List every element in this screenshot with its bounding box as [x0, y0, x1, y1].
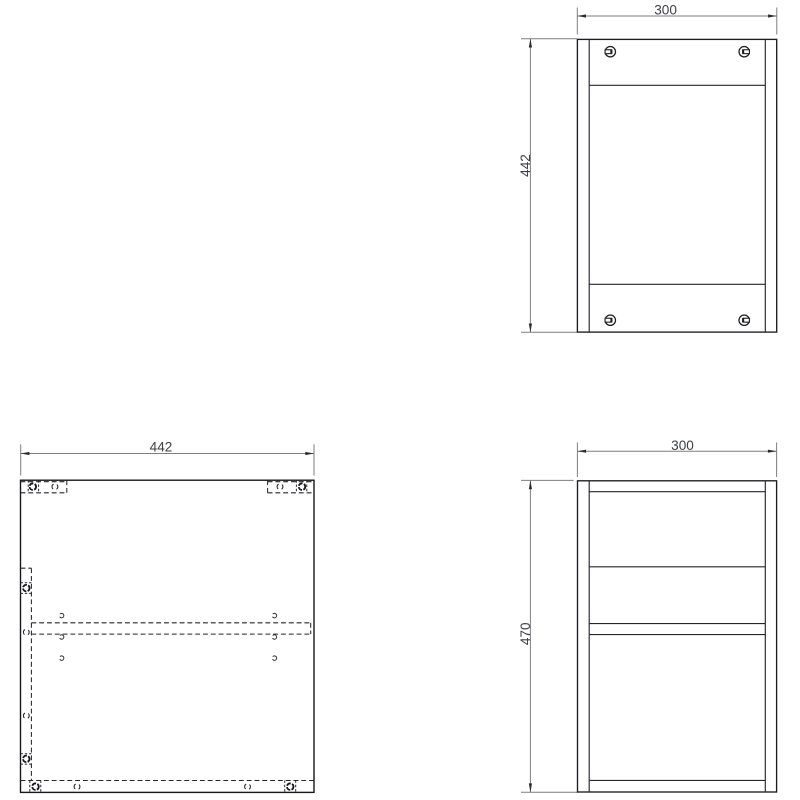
- svg-text:442: 442: [150, 440, 173, 455]
- svg-text:442: 442: [518, 154, 533, 177]
- svg-text:470: 470: [518, 622, 533, 645]
- svg-text:300: 300: [654, 2, 677, 17]
- svg-text:300: 300: [671, 438, 694, 453]
